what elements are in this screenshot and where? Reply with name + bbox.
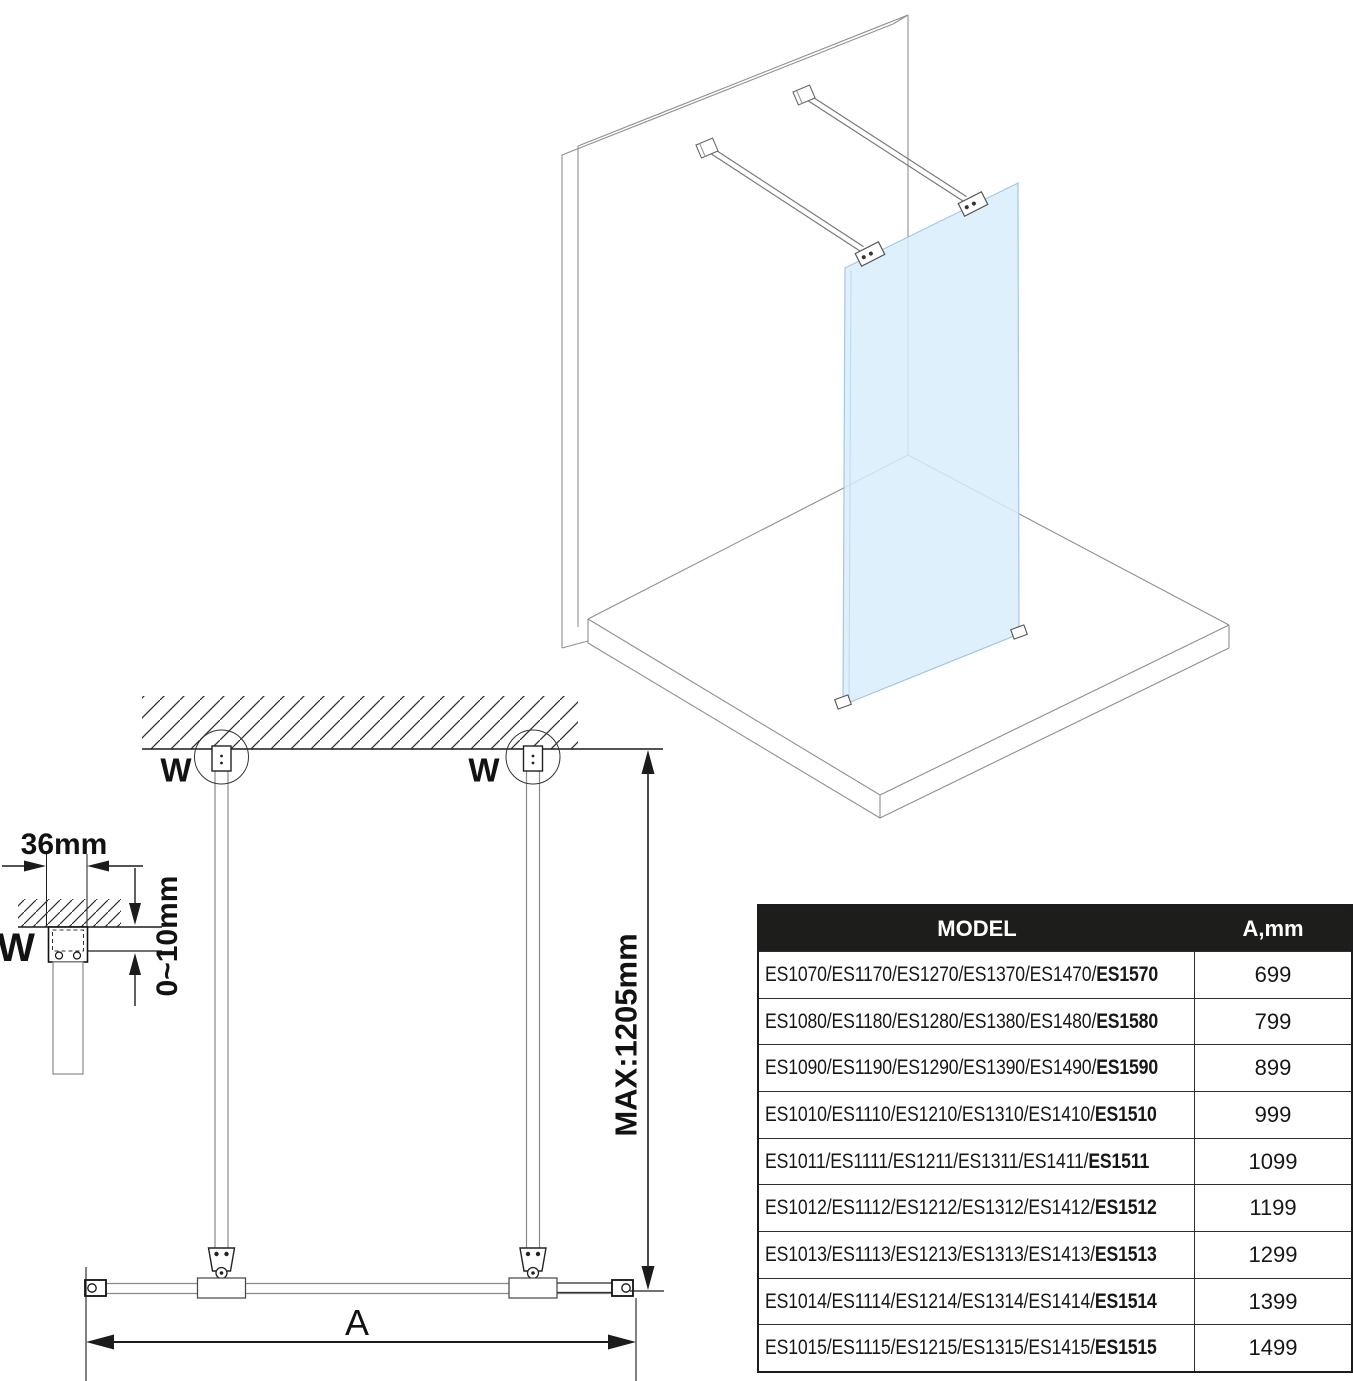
profile-bar-detail	[53, 962, 83, 1074]
bar-clamp-left	[209, 1248, 235, 1279]
wall-bracket-3d-back	[793, 85, 815, 105]
label-w-detail: W	[0, 928, 35, 968]
support-bar-3d-front	[711, 149, 864, 252]
table-row: ES1090/ES1190/ES1290/ES1390/ES1490/ES159…	[759, 1044, 1351, 1091]
support-bar-3d-back	[808, 96, 967, 202]
clamp-sleeve-right	[509, 1278, 557, 1298]
model-cell: ES1015/ES1115/ES1215/ES1315/ES1415/ES151…	[759, 1325, 1195, 1371]
label-a: A	[345, 1305, 369, 1341]
isometric-view	[562, 15, 1229, 818]
table-row: ES1012/ES1112/ES1212/ES1312/ES1412/ES151…	[759, 1184, 1351, 1231]
plan-view	[85, 696, 664, 1381]
dimension-0-10mm	[129, 868, 141, 1006]
wall-bracket-3d-front	[696, 138, 718, 158]
dimension-cell: 1299	[1195, 1232, 1351, 1278]
label-36mm: 36mm	[21, 830, 108, 860]
model-cell: ES1090/ES1190/ES1290/ES1390/ES1490/ES159…	[759, 1045, 1195, 1091]
dimension-cell: 699	[1195, 952, 1351, 998]
dimension-cell: 899	[1195, 1045, 1351, 1091]
dimension-cell: 1199	[1195, 1185, 1351, 1231]
wall-profile-detail	[49, 927, 88, 962]
end-cap-right	[612, 1280, 633, 1296]
dimension-cell: 1099	[1195, 1139, 1351, 1185]
label-w-right: W	[468, 754, 499, 787]
spec-table-header: MODEL A,mm	[759, 906, 1351, 951]
installation-drawing-page: 36mm W 0~10mm W W MAX:1205mm A MODEL A,m…	[0, 0, 1353, 1381]
glass-foot-3d-left	[835, 695, 852, 709]
label-max-1205: MAX:1205mm	[611, 933, 642, 1136]
model-cell: ES1070/ES1170/ES1270/ES1370/ES1470/ES157…	[759, 952, 1195, 998]
table-row: ES1080/ES1180/ES1280/ES1380/ES1480/ES158…	[759, 998, 1351, 1045]
support-bar-plan-right	[527, 771, 540, 1250]
bar-clamp-right	[520, 1248, 546, 1279]
spec-table-header-dimension: A,mm	[1195, 916, 1351, 942]
support-rod-segment	[553, 1283, 613, 1293]
model-cell: ES1012/ES1112/ES1212/ES1312/ES1412/ES151…	[759, 1185, 1195, 1231]
end-cap-left	[85, 1280, 106, 1296]
model-cell: ES1014/ES1114/ES1214/ES1314/ES1414/ES151…	[759, 1279, 1195, 1325]
table-row: ES1010/ES1110/ES1210/ES1310/ES1410/ES151…	[759, 1091, 1351, 1138]
clamp-sleeve-left	[198, 1278, 246, 1298]
table-row: ES1070/ES1170/ES1270/ES1370/ES1470/ES157…	[759, 951, 1351, 998]
label-0-10mm: 0~10mm	[153, 876, 183, 997]
table-row: ES1015/ES1115/ES1215/ES1315/ES1415/ES151…	[759, 1324, 1351, 1371]
model-cell: ES1080/ES1180/ES1280/ES1380/ES1480/ES158…	[759, 999, 1195, 1045]
dimension-cell: 999	[1195, 1092, 1351, 1138]
table-row: ES1011/ES1111/ES1211/ES1311/ES1411/ES151…	[759, 1138, 1351, 1185]
label-w-left: W	[160, 754, 191, 787]
model-cell: ES1010/ES1110/ES1210/ES1310/ES1410/ES151…	[759, 1092, 1195, 1138]
support-bar-plan-left	[215, 771, 228, 1250]
spec-table-header-model: MODEL	[759, 916, 1195, 942]
wall-bracket-plan-left	[212, 746, 231, 771]
wall-bracket-plan-right	[524, 746, 543, 771]
dimension-cell: 1499	[1195, 1325, 1351, 1371]
spec-table: MODEL A,mm ES1070/ES1170/ES1270/ES1370/E…	[757, 904, 1353, 1373]
model-cell: ES1011/ES1111/ES1211/ES1311/ES1411/ES151…	[759, 1139, 1195, 1185]
table-row: ES1013/ES1113/ES1213/ES1313/ES1413/ES151…	[759, 1231, 1351, 1278]
ceiling-hatch	[142, 696, 578, 749]
model-cell: ES1013/ES1113/ES1213/ES1313/ES1413/ES151…	[759, 1232, 1195, 1278]
dimension-cell: 799	[1195, 999, 1351, 1045]
wall-hatch-detail	[18, 899, 121, 927]
table-row: ES1014/ES1114/ES1214/ES1314/ES1414/ES151…	[759, 1278, 1351, 1325]
dimension-cell: 1399	[1195, 1279, 1351, 1325]
